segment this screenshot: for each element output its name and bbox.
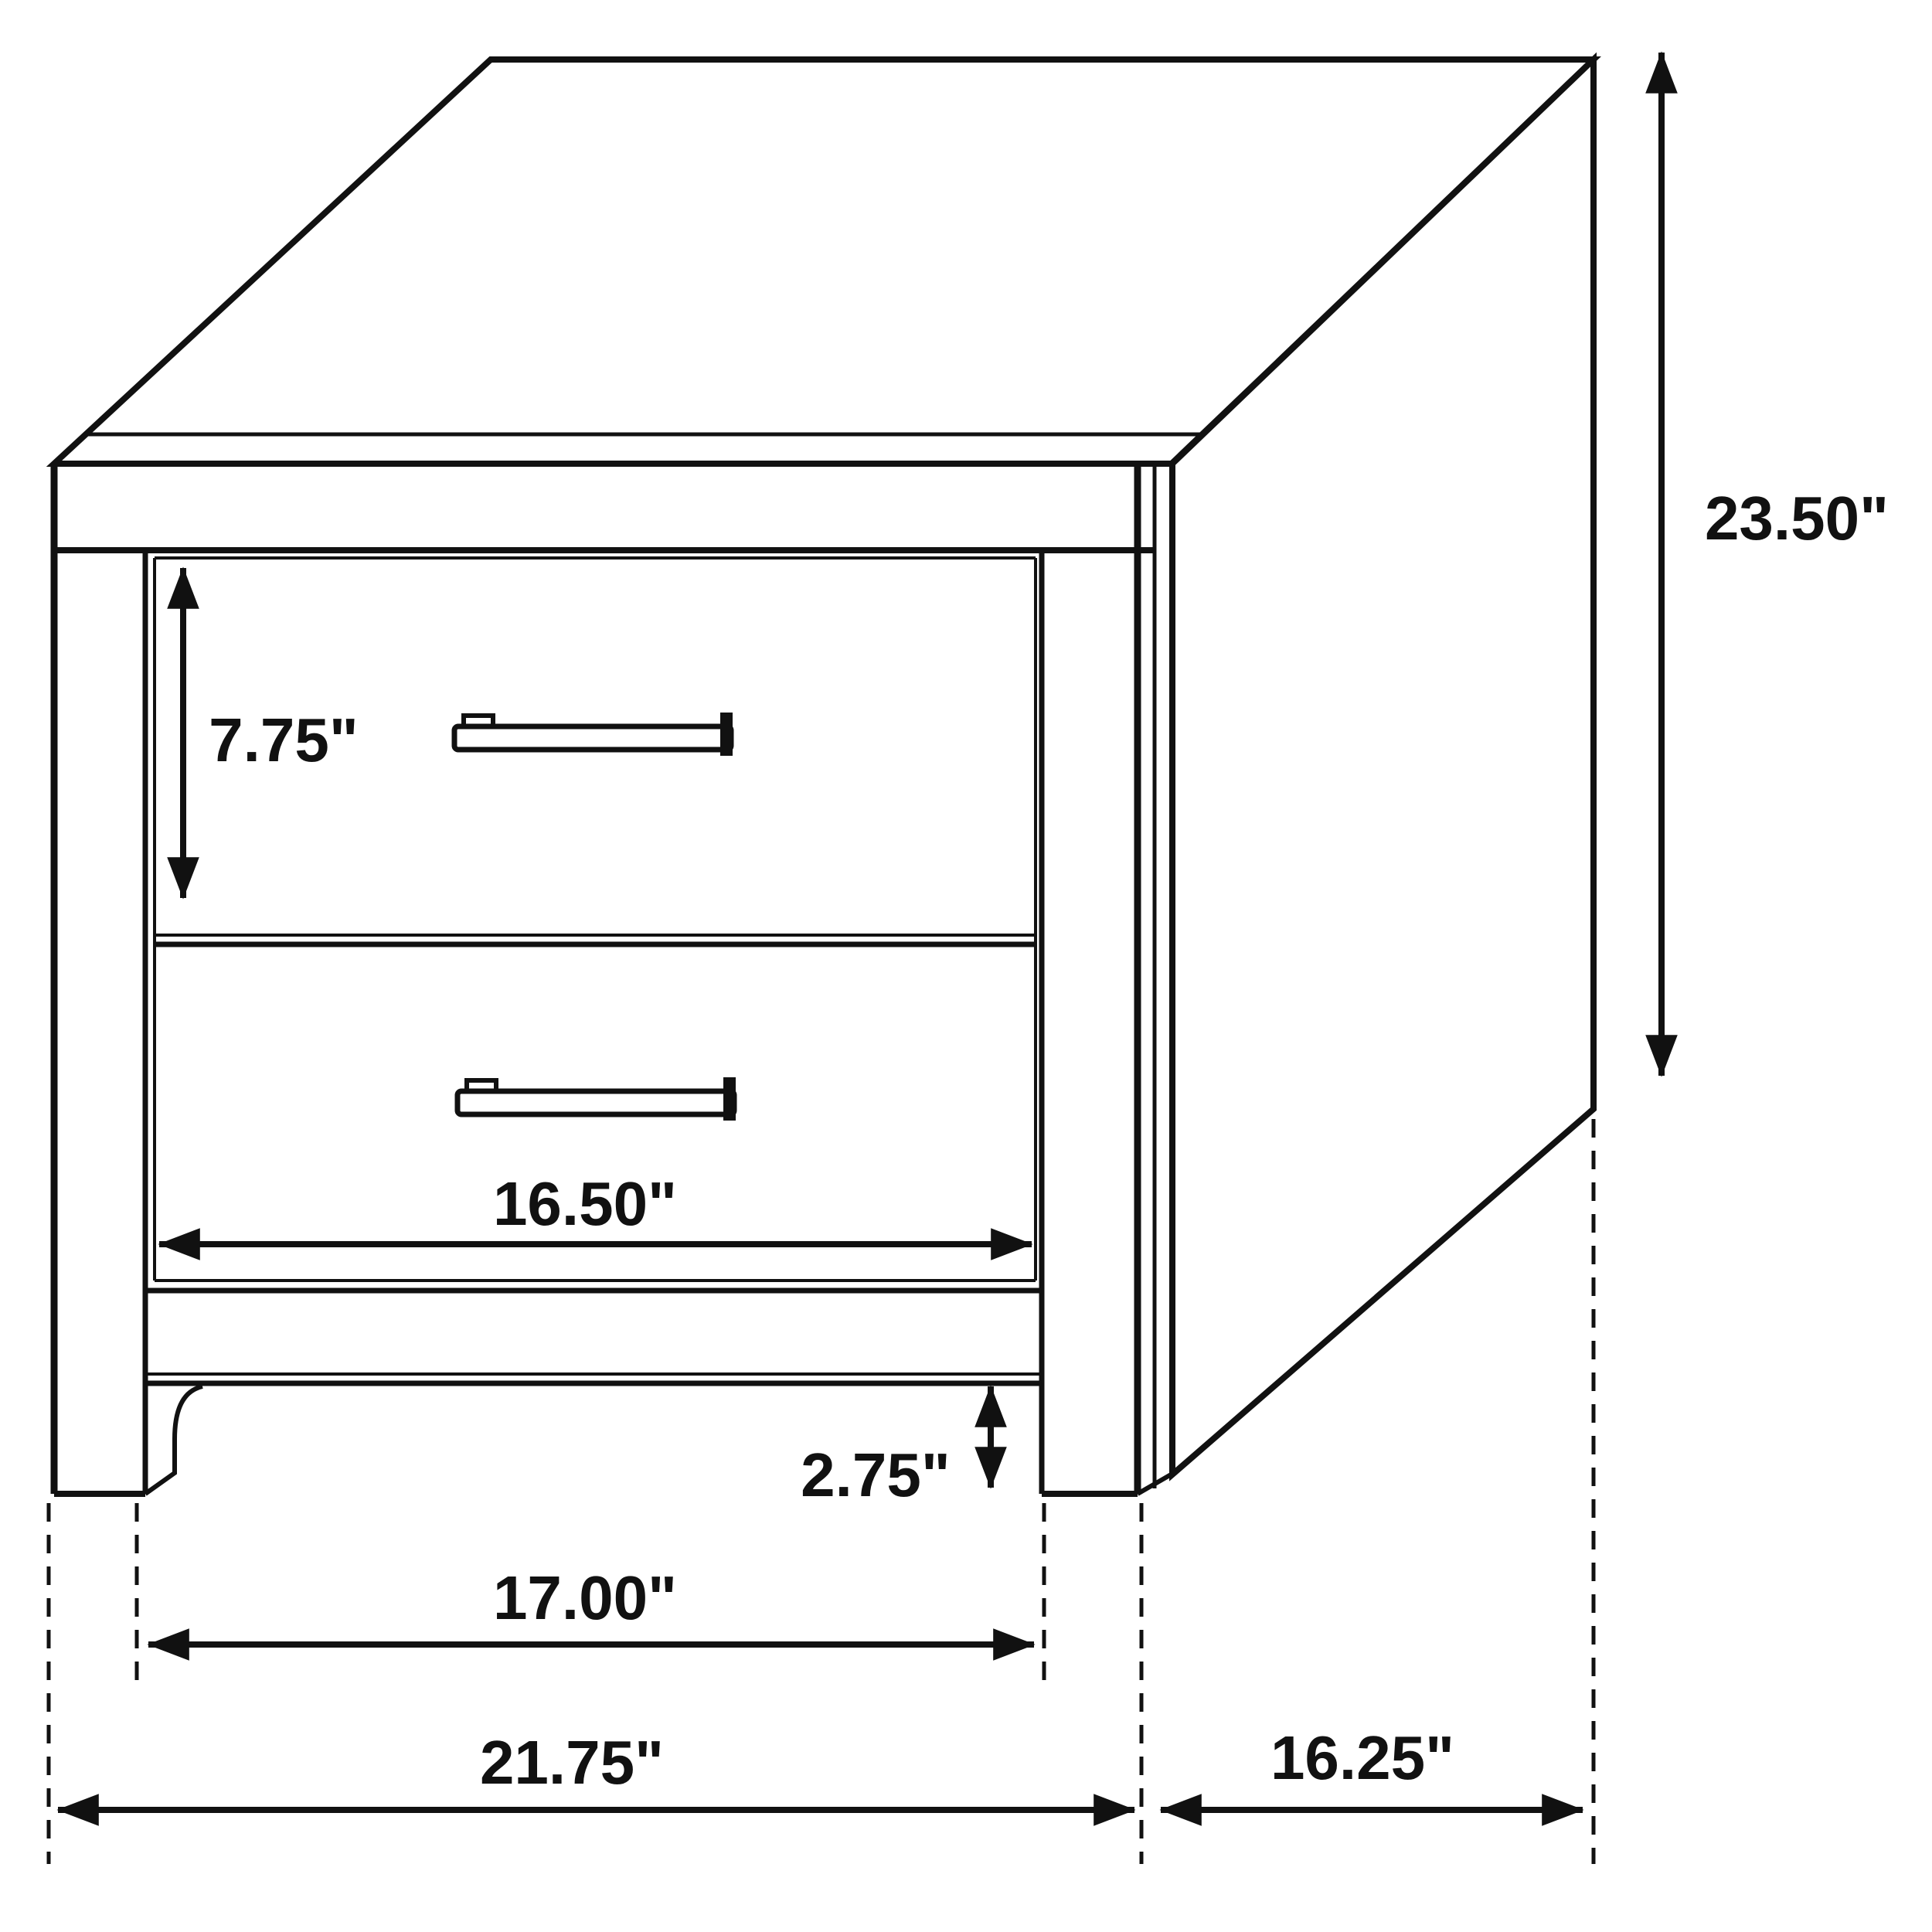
dimension-label-drawer-width: 16.50": [493, 1169, 677, 1238]
front-face-frame: [54, 464, 1155, 1494]
dimension-label-leg-span-width: 17.00": [493, 1563, 677, 1632]
dimension-label-base-clearance: 2.75": [801, 1440, 951, 1509]
drawer-handle-icon: [457, 1077, 736, 1121]
drawer-handle-icon: [454, 713, 733, 756]
dimension-label-top-drawer-height: 7.75": [209, 706, 359, 774]
dimension-label-overall-width: 21.75": [480, 1728, 664, 1797]
dimension-label-depth: 16.25": [1270, 1723, 1454, 1792]
dimension-diagram-canvas: 7.75" 23.50" 16.50" 2.75" 17.00" 21.75" …: [0, 0, 1932, 1932]
base-rail-and-legs: [54, 1374, 1172, 1494]
nightstand-dimension-diagram: 7.75" 23.50" 16.50" 2.75" 17.00" 21.75" …: [0, 0, 1932, 1932]
dimension-label-overall-height: 23.50": [1705, 484, 1889, 553]
